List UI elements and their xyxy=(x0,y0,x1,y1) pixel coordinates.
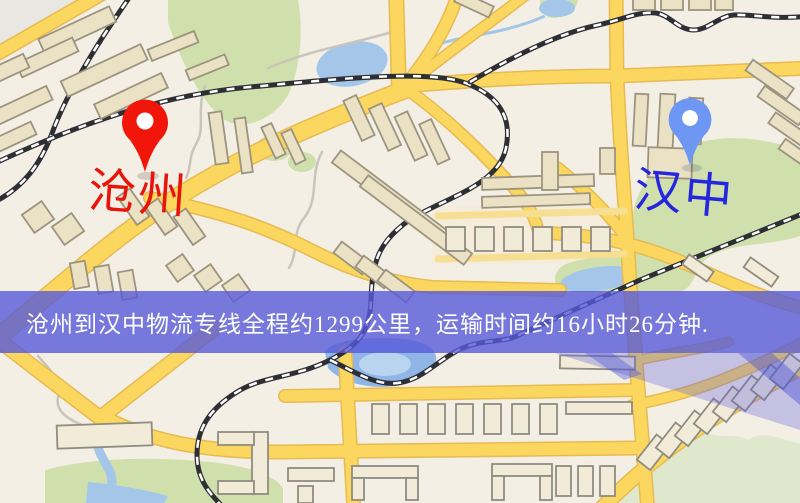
route-info-text: 沧州到汉中物流专线全程约1299公里，运输时间约16小时26分钟. xyxy=(0,305,709,339)
route-info-banner: 沧州到汉中物流专线全程约1299公里，运输时间约16小时26分钟. xyxy=(0,291,800,353)
origin-city-label: 沧州 xyxy=(86,167,189,224)
route-map-image: 沧州 汉中 沧州到汉中物流专线全程约1299公里，运输时间约16小时26分钟. xyxy=(0,0,800,503)
map-canvas xyxy=(0,0,800,503)
destination-city-label: 汉中 xyxy=(632,166,736,225)
